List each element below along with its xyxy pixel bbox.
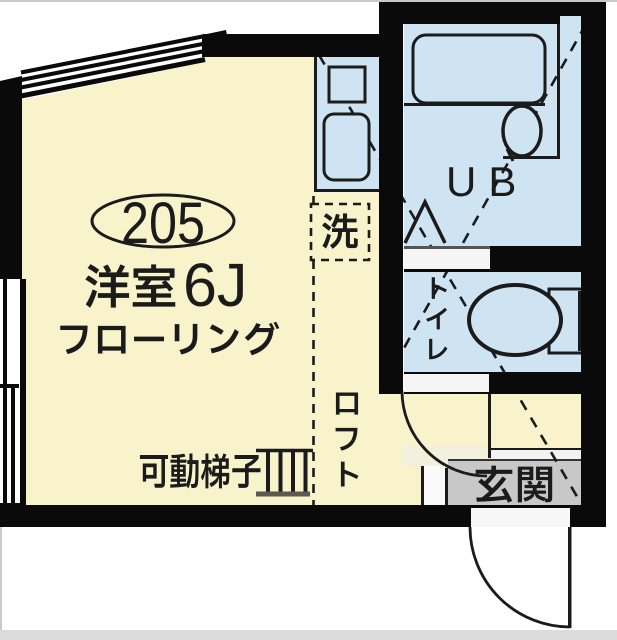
svg-text:205: 205 (121, 191, 205, 256)
svg-text:UB: UB (446, 158, 528, 205)
svg-text:6J: 6J (183, 251, 247, 319)
